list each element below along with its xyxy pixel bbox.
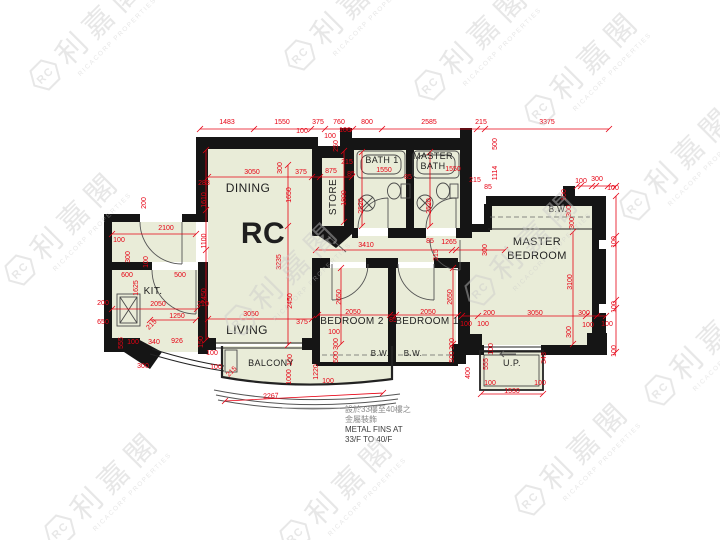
dimension-label: 100	[477, 321, 489, 328]
dimension-label: 300	[125, 251, 132, 263]
dimension-label: 215	[341, 159, 353, 166]
dimension-label: 100	[488, 343, 495, 355]
dimension-label: 500	[492, 138, 499, 150]
dimension-label: 2050	[345, 309, 361, 316]
dimension-label: 215	[475, 119, 487, 126]
watermark-instance	[518, 3, 656, 141]
watermark-instance	[638, 283, 720, 421]
dimension-label: 1114	[492, 166, 499, 181]
dimension-label: 375	[296, 319, 308, 326]
dimension-label: 200	[141, 197, 148, 209]
dimension-label: 2650	[447, 289, 454, 305]
room-label: DINING	[226, 181, 270, 195]
dimension-label: 100	[611, 345, 618, 357]
dimension-label: 500	[174, 272, 186, 279]
dimension-label: 2520	[358, 198, 365, 214]
room-label: U.P.	[503, 358, 521, 368]
dimension-label: 300	[137, 363, 149, 370]
dimension-label: 2050	[150, 301, 166, 308]
dimension-label: 300	[449, 338, 456, 350]
dimension-label: 100	[582, 322, 594, 329]
dimension-label: 100	[143, 256, 150, 268]
dimension-label: 1100	[201, 233, 208, 248]
dimension-label: 1000	[286, 369, 293, 385]
dimension-label: 2267	[263, 393, 279, 401]
watermark-instance	[273, 428, 411, 540]
annotation-line: 金屬裝飾	[345, 414, 377, 424]
dimension-label: 1625	[133, 280, 140, 296]
room-label: STORE	[328, 179, 339, 215]
dimension-label: 100	[127, 339, 139, 346]
dimension-label: 760	[333, 119, 345, 126]
dimension-label: 210	[197, 301, 209, 308]
dimension-label: 1550	[274, 119, 290, 126]
dimension-label: 375	[295, 169, 307, 176]
dimension-label: 3050	[244, 169, 260, 176]
dimension-label: 100	[206, 350, 218, 357]
watermark-instance	[508, 393, 646, 531]
dimension-label: 200	[483, 310, 495, 317]
dimension-label: 1530	[504, 388, 520, 395]
dimension-label: 875	[325, 168, 337, 175]
watermark-instance	[278, 0, 416, 85]
room-label: RC	[241, 217, 285, 250]
dimension-label: 100	[611, 301, 618, 313]
dimension-label: 1250	[169, 313, 185, 320]
dimension-label: 555	[118, 337, 125, 349]
dimension-label: 100	[324, 133, 336, 140]
dimension-label: 283	[198, 180, 210, 187]
room-label: KIT.	[144, 286, 163, 297]
dimension-label: 100	[328, 329, 340, 336]
dimension-label: 3410	[358, 242, 374, 249]
dimension-label: 1220	[313, 364, 320, 380]
dimension-label: 1650	[286, 187, 293, 203]
dimension-label: 300	[578, 310, 590, 317]
dimension-label: 85	[347, 171, 355, 178]
annotation-line: 設於33樓至40樓之	[345, 404, 411, 414]
dimension-label: 2100	[158, 225, 174, 232]
dimension-label: 100	[296, 128, 308, 135]
dimension-label: 100	[484, 380, 496, 387]
dimension-label: 343	[541, 352, 548, 364]
watermark-instance	[38, 423, 176, 540]
dimension-label: 300	[333, 338, 340, 350]
dimension-label: 800	[361, 119, 373, 126]
dimension-label: 100	[611, 236, 618, 248]
dimension-label: 100	[534, 380, 546, 387]
dimension-label: 1800	[341, 190, 348, 206]
dimension-label: 100	[113, 237, 125, 244]
dimension-label: 85	[426, 238, 434, 245]
room-label: B.W.	[371, 349, 390, 358]
dimension-label: 600	[121, 272, 133, 279]
floor-plan-svg: RC利嘉閣RICACORP PROPERTIES	[0, 0, 720, 540]
dimension-label: 1550	[376, 167, 392, 174]
dimension-label: 1265	[441, 239, 457, 246]
dimension-label: 100	[322, 378, 334, 385]
dimension-label: 100	[339, 127, 351, 134]
balcony-dim-line	[222, 390, 386, 404]
dimension-label: 300	[277, 162, 284, 174]
dimension-label: 100	[460, 321, 472, 328]
dimension-label: 555	[483, 358, 490, 370]
dimension-label: 340	[148, 339, 160, 346]
dimension-label: 400	[465, 367, 472, 379]
dimension-label: 926	[171, 338, 183, 345]
dimension-label: 500	[449, 351, 456, 363]
room-label: BALCONY	[248, 358, 294, 368]
dimension-label: 2650	[336, 289, 343, 305]
dimension-label: 100	[607, 185, 619, 192]
dimension-label: 2050	[420, 309, 436, 316]
dimension-label: 300	[482, 244, 489, 256]
dimension-label: 200	[97, 300, 109, 307]
dimension-label: 2520	[426, 198, 433, 214]
dimension-label: 1610	[201, 192, 208, 208]
dimension-label: 100	[601, 321, 613, 328]
dimension-label: 150	[198, 336, 205, 348]
dimension-label: 500	[333, 351, 340, 363]
dimension-label: 85	[404, 174, 412, 181]
watermark-instance	[408, 0, 546, 115]
dimension-label: 1550	[445, 166, 461, 173]
room-label: BATH 1	[365, 155, 398, 165]
dimension-label: 375	[312, 119, 324, 126]
dimension-label: 1483	[219, 119, 235, 126]
dimension-label: 100	[210, 364, 222, 371]
dimension-label: 215	[469, 177, 481, 184]
watermark-instance	[23, 0, 161, 105]
dimension-label: 650	[97, 319, 109, 326]
dimension-label: 2585	[421, 119, 437, 126]
dimension-label: 250	[333, 140, 340, 152]
room-label: B.W.	[404, 349, 423, 358]
watermark-instance	[613, 98, 720, 236]
dimension-label: 3050	[527, 310, 543, 317]
dimension-label: 3100	[567, 274, 574, 290]
floor-plan-page: RC利嘉閣RICACORP PROPERTIES	[0, 0, 720, 540]
room-label: BEDROOM 1	[395, 316, 459, 327]
dimension-label: 100	[575, 178, 587, 185]
dimension-label: 300	[591, 176, 603, 183]
room-label: BEDROOM 2	[320, 316, 384, 327]
dimension-label: 85	[484, 184, 492, 191]
dimension-label: 300	[566, 326, 573, 338]
dimension-label: 315	[433, 249, 440, 261]
